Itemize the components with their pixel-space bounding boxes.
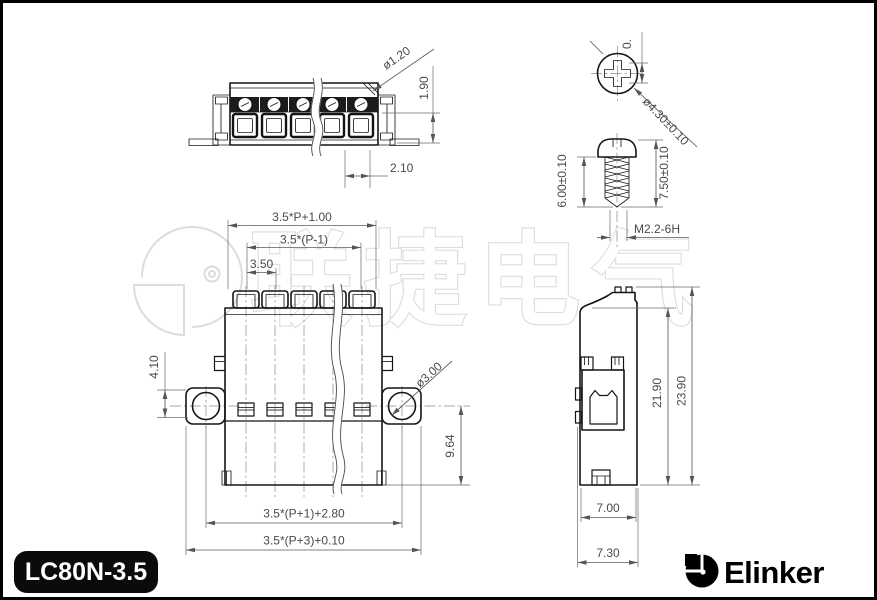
watermark: 联捷电气 [134, 224, 706, 338]
dim-front-flange-height: 4.10 [147, 355, 161, 379]
dim-side-inner-height: 21.90 [650, 378, 664, 408]
dim-front-screw-span: 3.5*(P-1) [280, 233, 328, 247]
model-badge: LC80N-3.5 [14, 551, 158, 593]
dim-front-overall-width: 3.5*(P+3)+0.10 [263, 534, 345, 548]
wire-clamp [582, 370, 624, 430]
cad-drawing: 联捷电气 [0, 0, 877, 600]
dim-front-width-top: 3.5*P+1.00 [272, 210, 332, 224]
dim-screw-clipped: 0. [620, 39, 634, 49]
dim-top-hole-dia: ø1.20 [380, 43, 413, 72]
dim-side-total-height: 23.90 [675, 376, 689, 406]
drawing-sheet: 联捷电气 [0, 0, 877, 600]
wire-openings [233, 114, 373, 137]
dim-front-mount-hole: ø3.00 [413, 359, 445, 390]
model-number: LC80N-3.5 [25, 558, 147, 586]
dim-screw-thread-length: 6.00±0.10 [555, 154, 569, 208]
dim-front-pitch: 3.50 [250, 257, 274, 271]
dim-screw-total-length: 7.50±0.10 [657, 146, 671, 200]
top-view: ø1.20 1.90 2.10 [189, 43, 440, 188]
brand-logo: Elinker [683, 552, 824, 590]
brand-name: Elinker [724, 555, 824, 590]
dim-top-height: 1.90 [417, 76, 431, 100]
dim-side-body-width: 7.00 [596, 501, 620, 515]
dim-side-total-width: 7.30 [596, 546, 620, 560]
screw-top-view: 0. ø4.30±0.10 [590, 32, 697, 148]
dim-front-flange-span: 3.5*(P+1)+2.80 [263, 507, 345, 521]
dim-thread-spec: M2.2-6H [634, 222, 680, 236]
brand-logo-icon [683, 552, 719, 588]
dim-front-body-height: 9.64 [443, 434, 457, 458]
dim-top-pitch: 2.10 [390, 161, 414, 175]
